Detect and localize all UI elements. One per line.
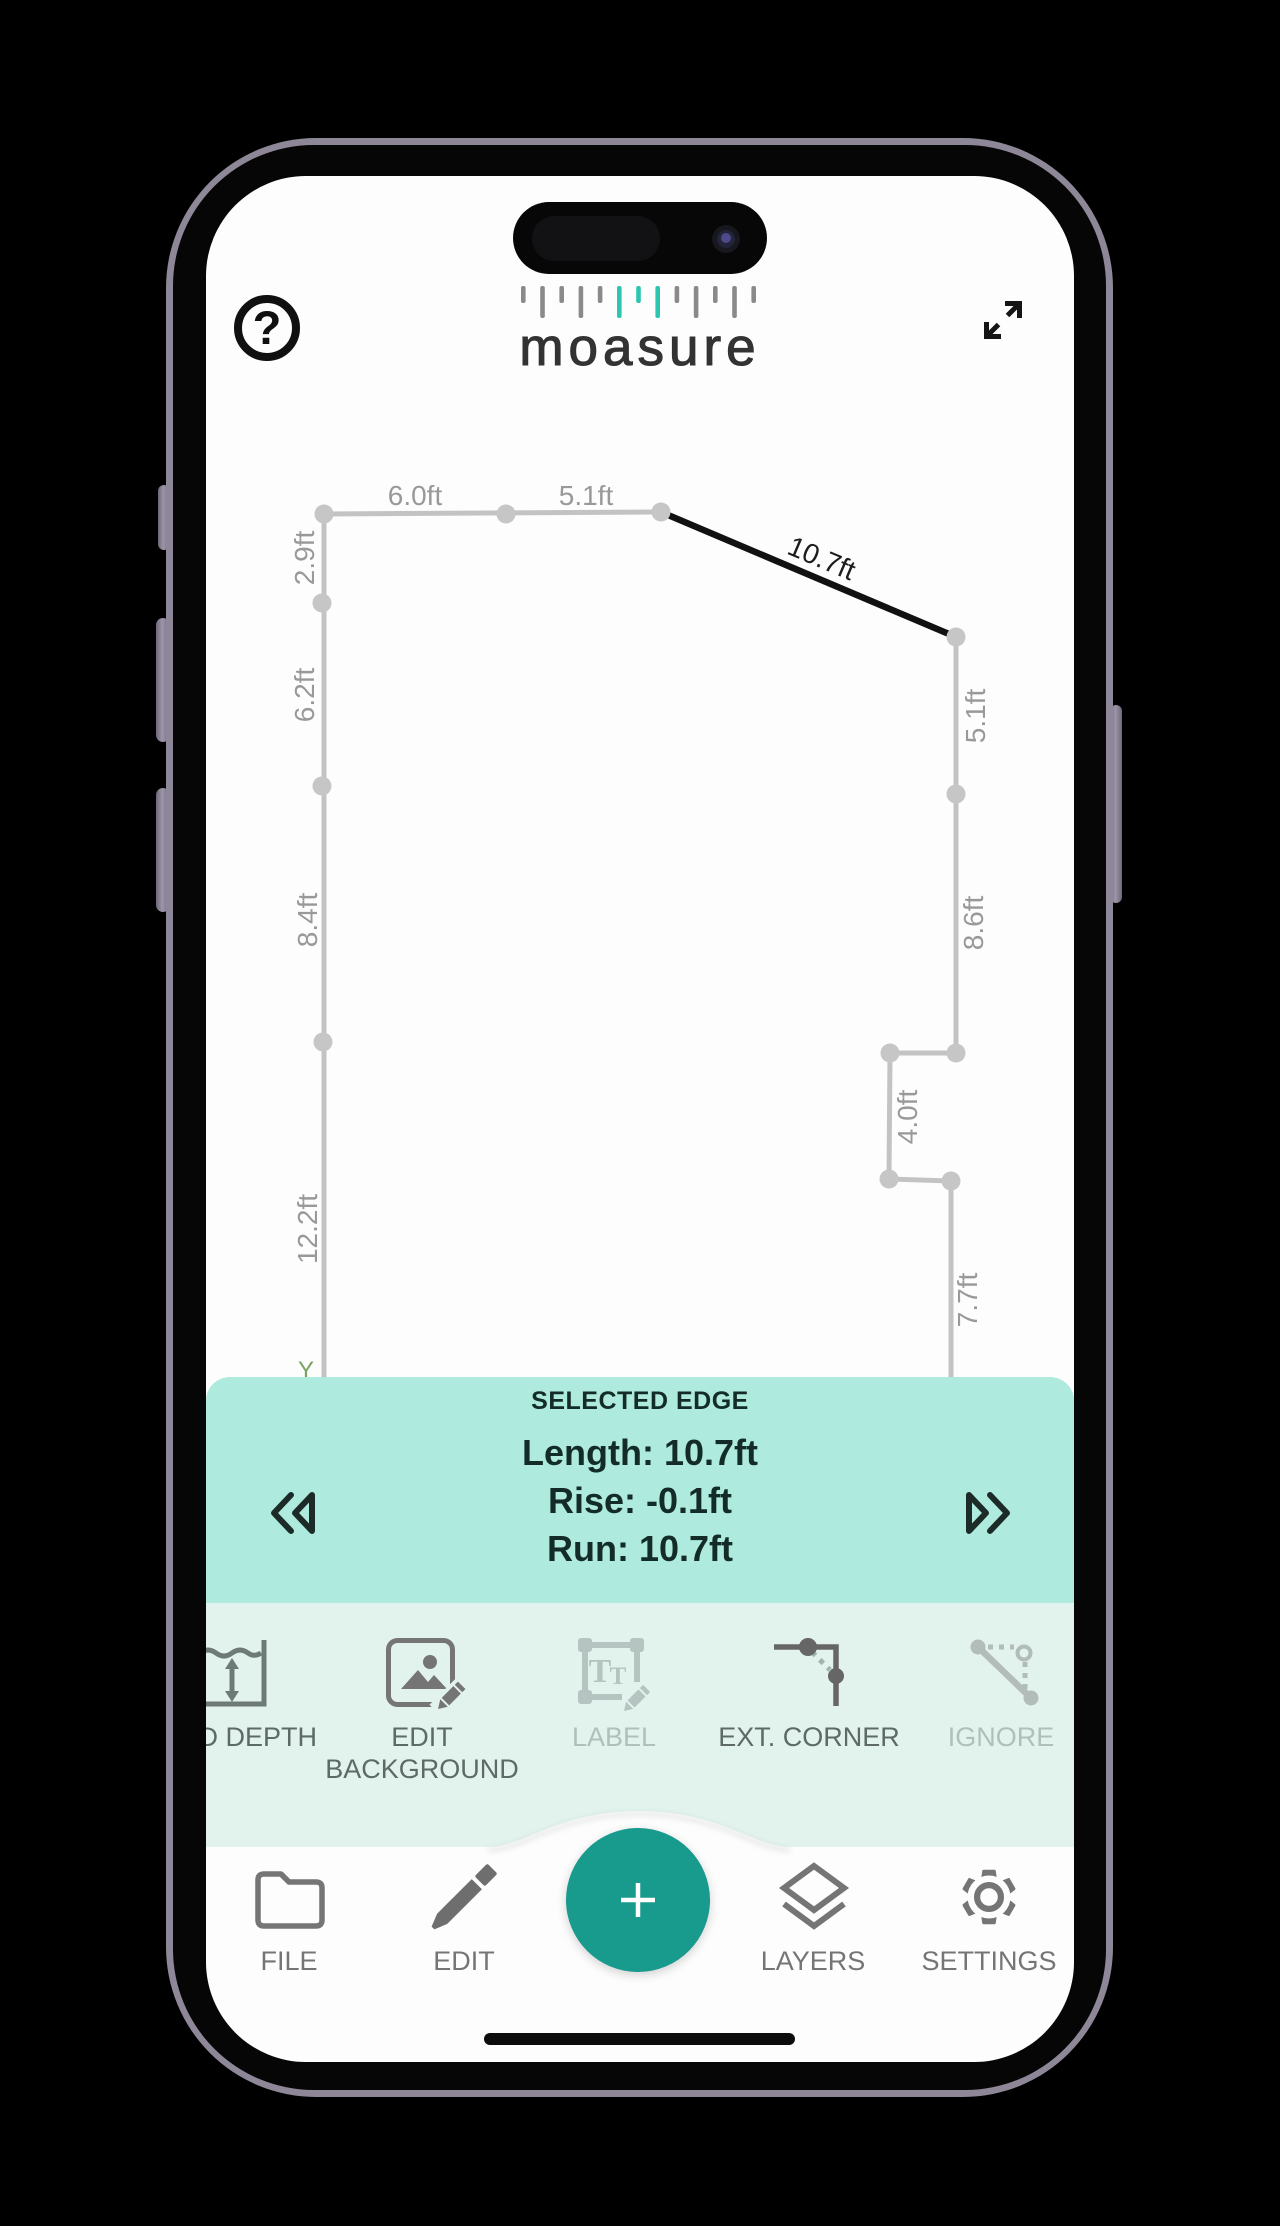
svg-text:2.9ft: 2.9ft (289, 531, 320, 586)
svg-text:T: T (589, 1653, 612, 1690)
svg-text:5.1ft: 5.1ft (960, 689, 991, 744)
svg-text:8.4ft: 8.4ft (292, 893, 323, 948)
svg-text:T: T (610, 1663, 627, 1690)
svg-text:4.0ft: 4.0ft (892, 1090, 923, 1145)
svg-text:5.1ft: 5.1ft (559, 480, 614, 511)
svg-text:12.2ft: 12.2ft (292, 1194, 323, 1264)
svg-text:6.2ft: 6.2ft (289, 668, 320, 723)
svg-text:8.6ft: 8.6ft (958, 896, 989, 951)
svg-text:6.0ft: 6.0ft (388, 480, 443, 511)
svg-text:7.7ft: 7.7ft (952, 1273, 983, 1328)
